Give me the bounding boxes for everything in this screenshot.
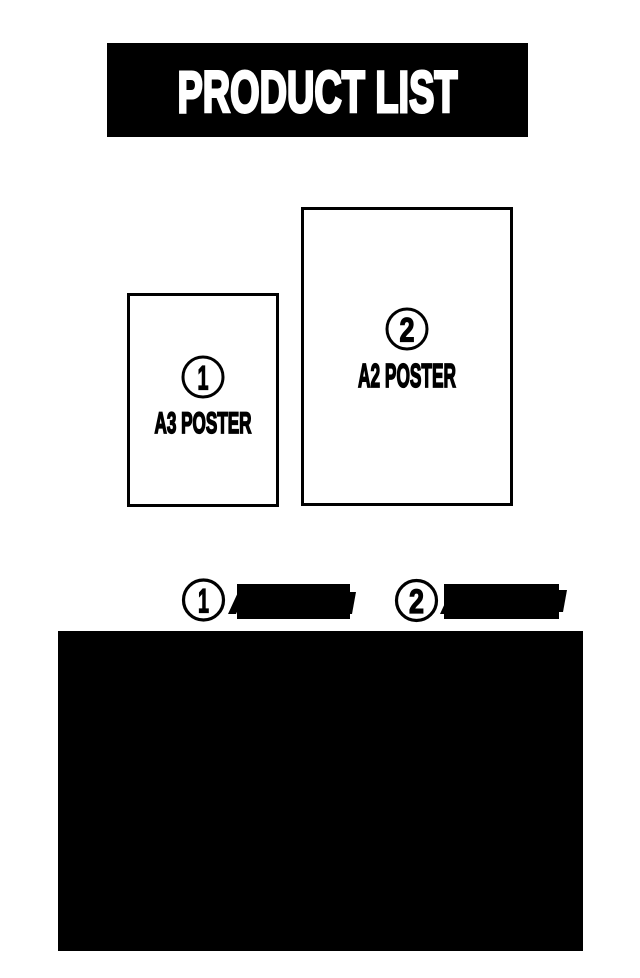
svg-text:2: 2	[400, 312, 415, 350]
svg-text:2: 2	[409, 583, 424, 621]
svg-text:1: 1	[198, 360, 209, 398]
svg-text:A2 POSTER: A2 POSTER	[358, 357, 456, 394]
svg-text:PRODUCT LIST: PRODUCT LIST	[178, 60, 458, 125]
svg-text:A3 POSTER: A3 POSTER	[155, 407, 252, 440]
svg-text:1: 1	[198, 583, 209, 621]
